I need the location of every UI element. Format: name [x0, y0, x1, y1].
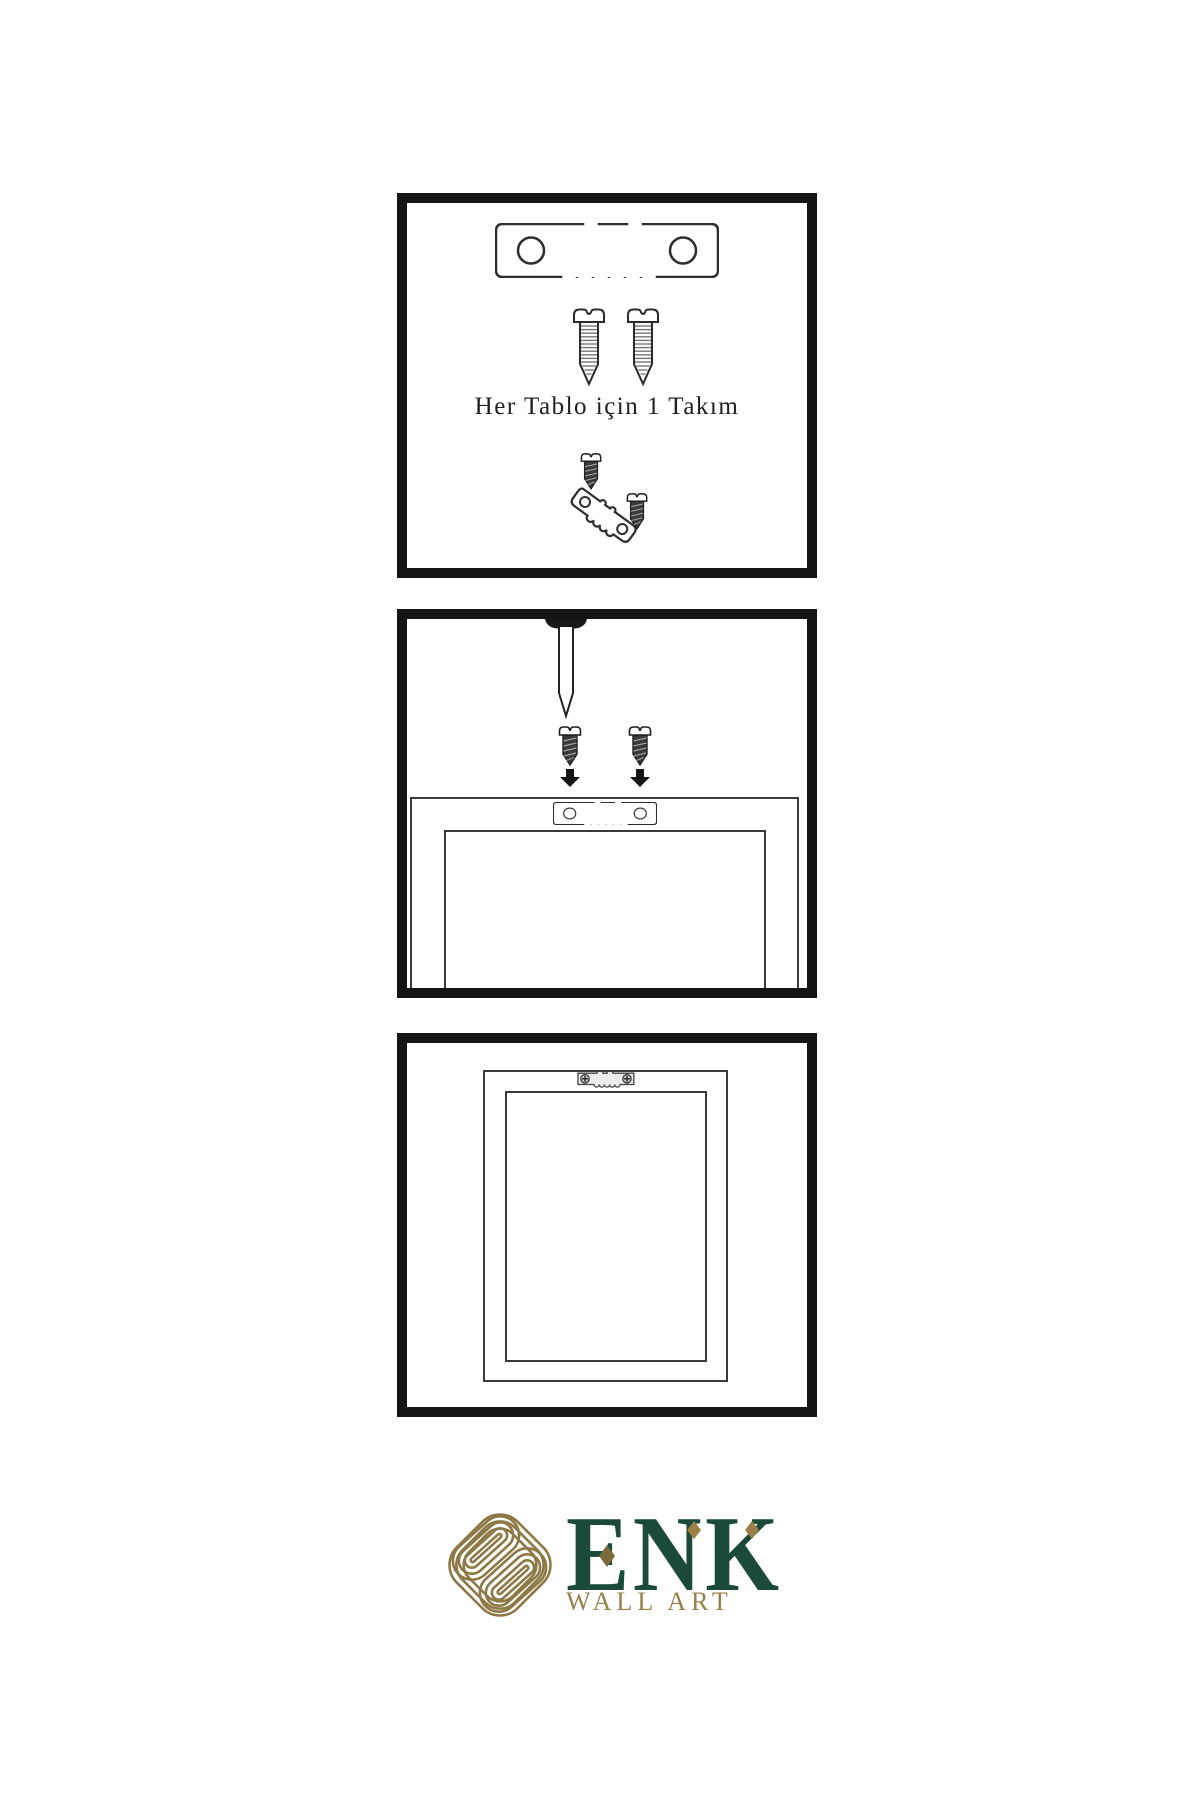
frame-back-inner-edge [505, 1091, 707, 1362]
sawtooth-hanger-icon [553, 802, 657, 825]
instruction-sheet: Her Tablo için 1 Takım ENK WALL ART [0, 0, 1200, 1800]
dark-screw-icon [628, 725, 652, 767]
panel-attach-hanger [397, 609, 817, 998]
down-arrow-icon [630, 769, 650, 787]
mounted-sawtooth-hanger-icon [575, 1072, 637, 1090]
dark-screw-icon [558, 725, 582, 767]
sawtooth-hanger-icon [495, 223, 719, 278]
screw-icon [572, 307, 606, 387]
screw-icon [626, 307, 660, 387]
panel-mounted-result [397, 1033, 817, 1417]
frame-back-inner-edge [444, 830, 766, 990]
down-arrow-icon [560, 769, 580, 787]
knot-emblem-icon [440, 1503, 560, 1627]
kit-caption: Her Tablo için 1 Takım [407, 393, 807, 421]
panel-hardware-kit: Her Tablo için 1 Takım [397, 193, 817, 578]
screw-into-hanger-assembly-icon [570, 450, 670, 555]
wall-nail-icon [544, 619, 588, 719]
brand-tagline: WALL ART [566, 1589, 733, 1615]
